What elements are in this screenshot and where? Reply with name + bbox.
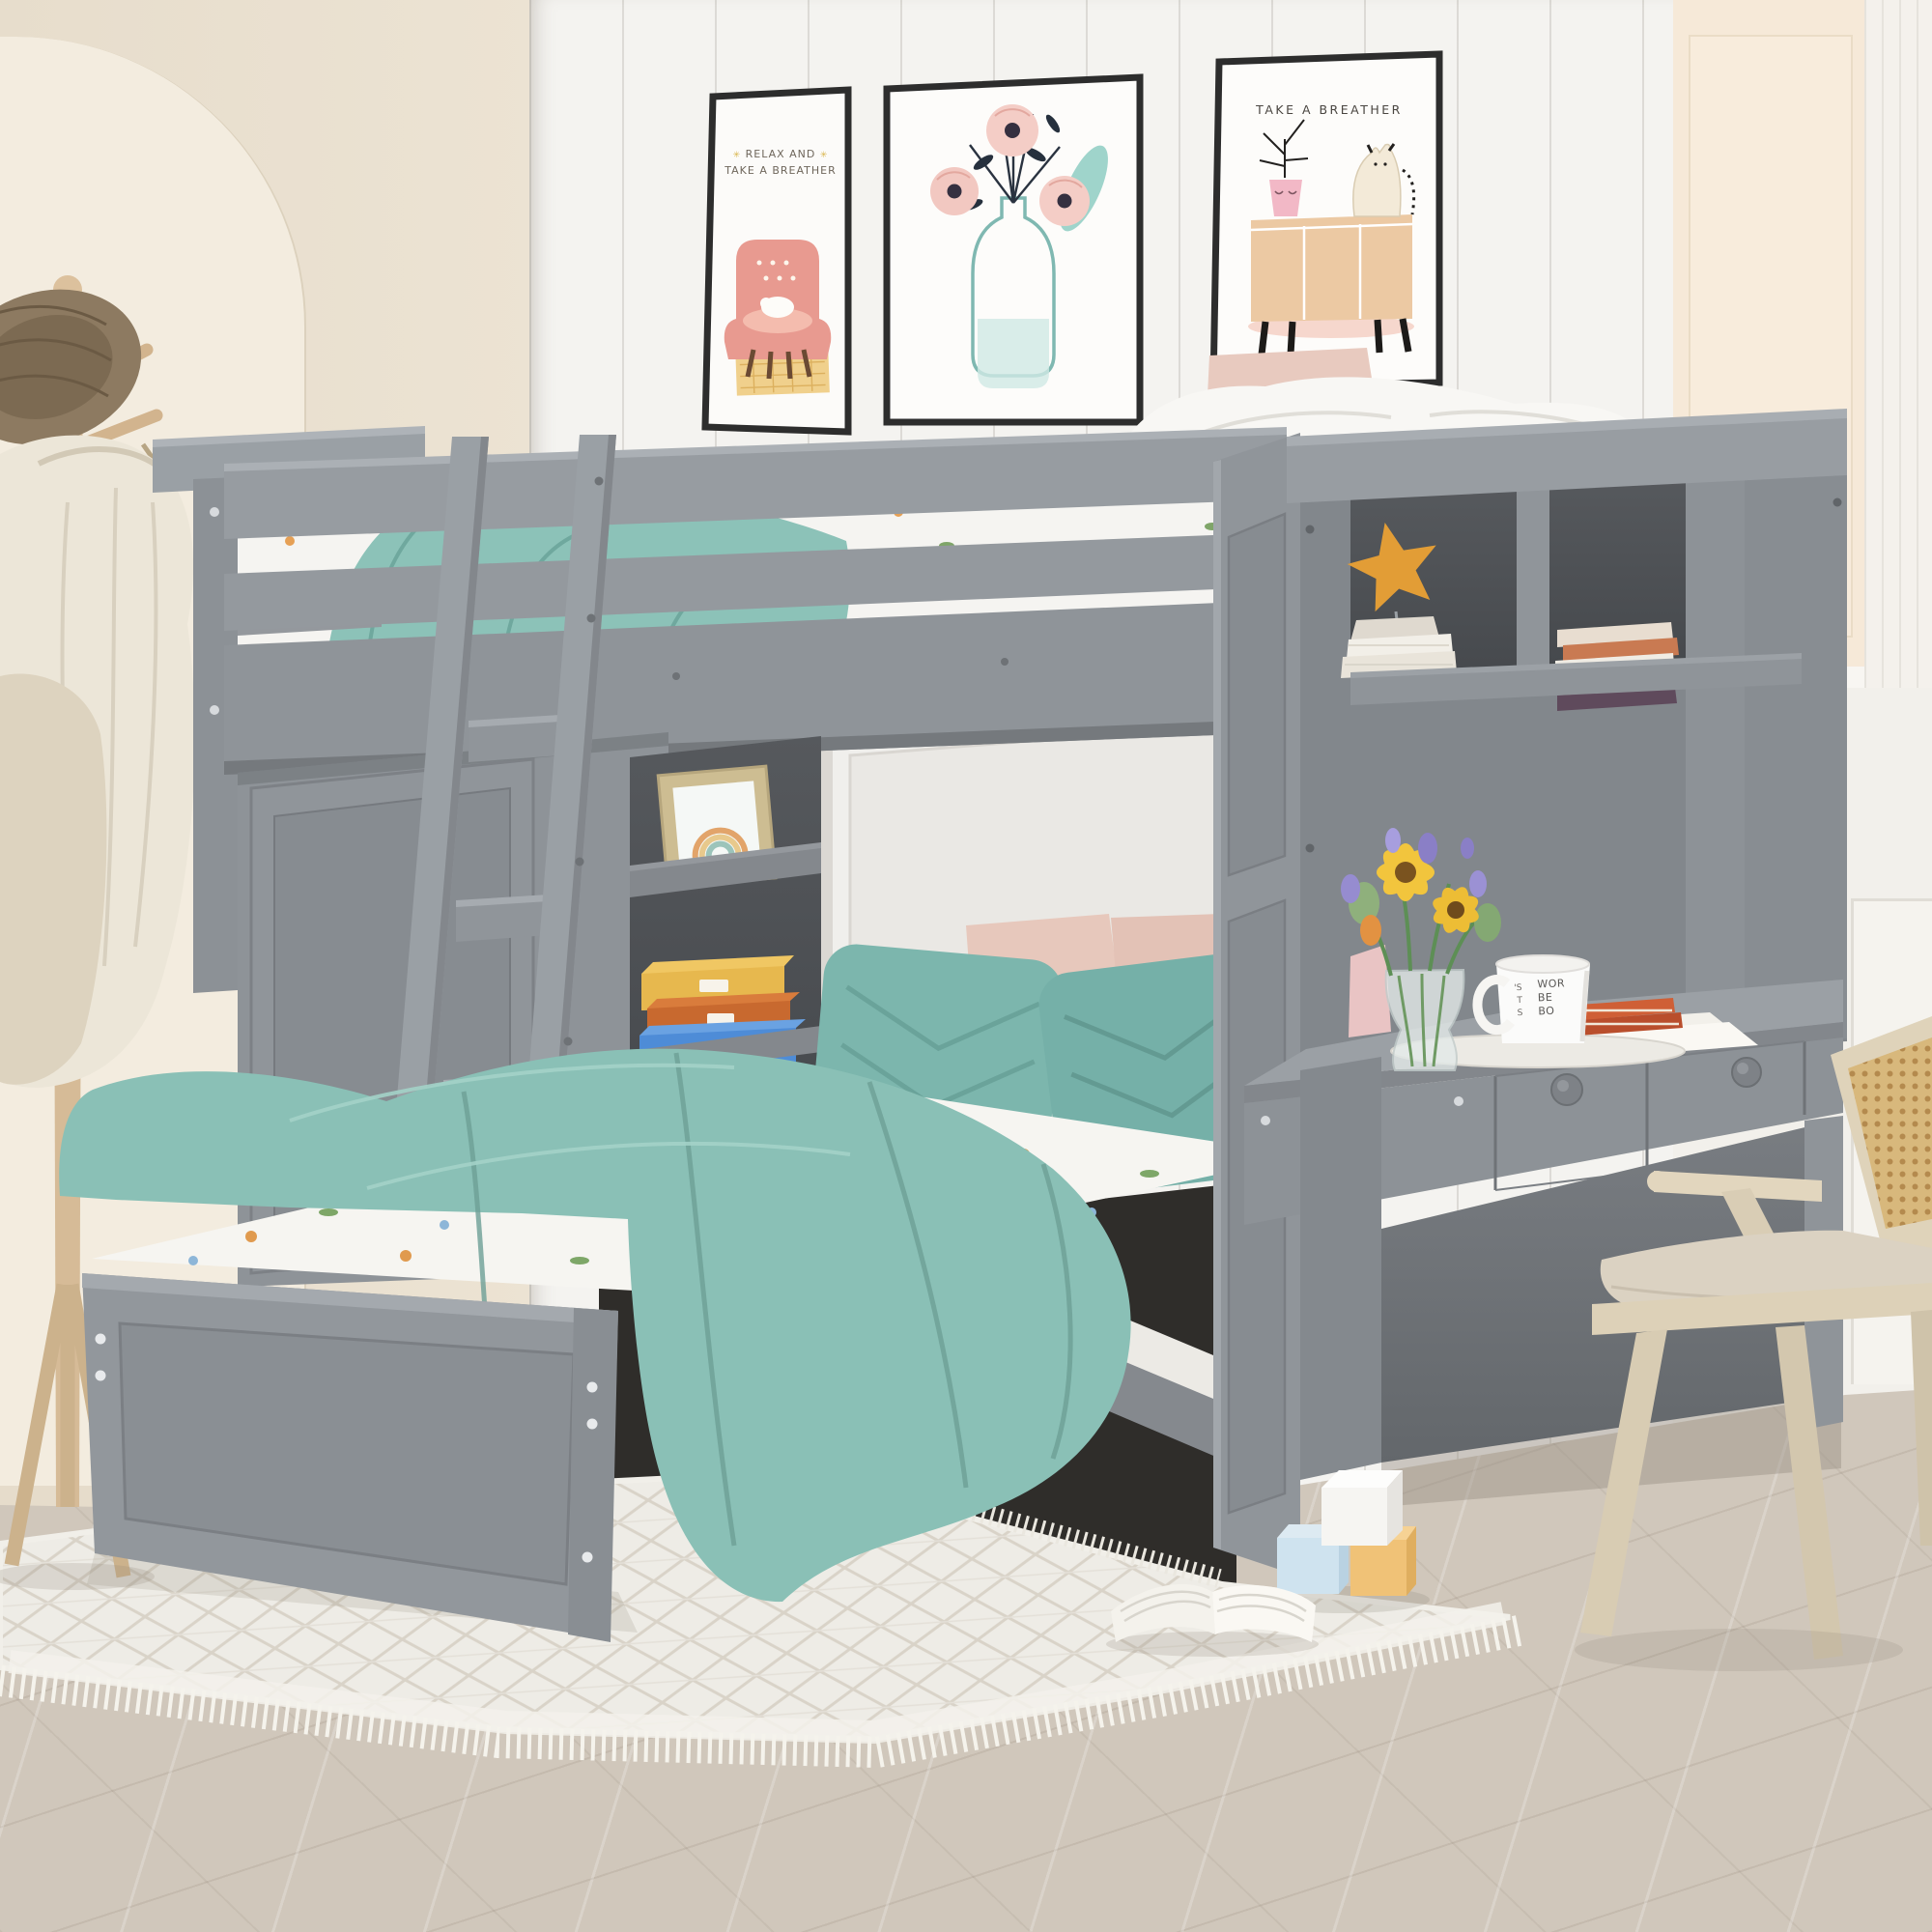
poster-armchair xyxy=(705,90,848,432)
chair-leg-rear xyxy=(1911,1310,1932,1546)
hutch-divider xyxy=(1517,487,1549,678)
ladder-rung xyxy=(456,900,549,942)
poster3-cabinet xyxy=(1251,214,1412,322)
star-decoration-icon: ✳ xyxy=(733,151,742,160)
poster1-caption: ✳ RELAX AND ✳ TAKE A BREATHER xyxy=(723,147,838,178)
hanging-coat xyxy=(0,436,195,1088)
ladder-rung xyxy=(469,721,560,762)
open-book xyxy=(1106,1584,1319,1657)
desk-leg-left xyxy=(1300,1057,1381,1480)
block-orange xyxy=(1350,1540,1406,1596)
star-decoration-icon: ✳ xyxy=(820,151,829,160)
tower-panel-upper xyxy=(1229,514,1285,875)
product-photo-scene: ✳ RELAX AND ✳ TAKE A BREATHER TAKE A BRE… xyxy=(0,0,1932,1932)
poster-flowers xyxy=(887,77,1140,422)
poster3-caption: TAKE A BREATHER xyxy=(1233,102,1426,117)
block-blue xyxy=(1277,1538,1339,1594)
block-white xyxy=(1321,1488,1387,1546)
poster3-plant-pot xyxy=(1269,180,1302,216)
furniture-artwork xyxy=(0,0,1932,1932)
bookcase-tower xyxy=(1213,433,1300,1577)
mug-print: 'S T S WOR BE BO xyxy=(1498,976,1597,1025)
